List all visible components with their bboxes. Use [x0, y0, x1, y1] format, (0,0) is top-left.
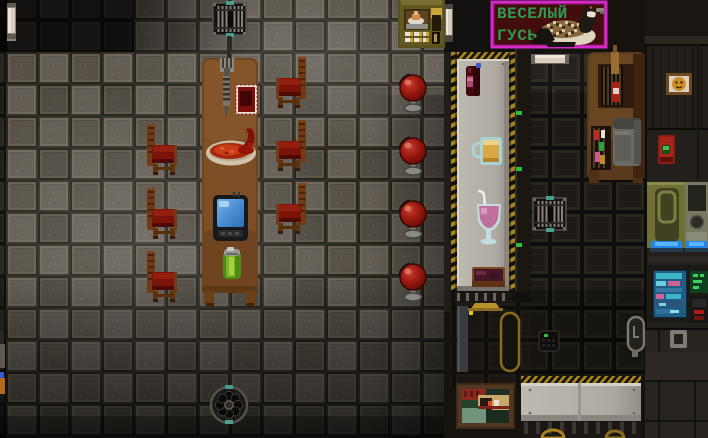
svg-text:ВЕСЕЛЫЙ: ВЕСЕЛЫЙ: [497, 4, 568, 23]
svg-text:ГУСЬ: ГУСЬ: [497, 27, 537, 45]
